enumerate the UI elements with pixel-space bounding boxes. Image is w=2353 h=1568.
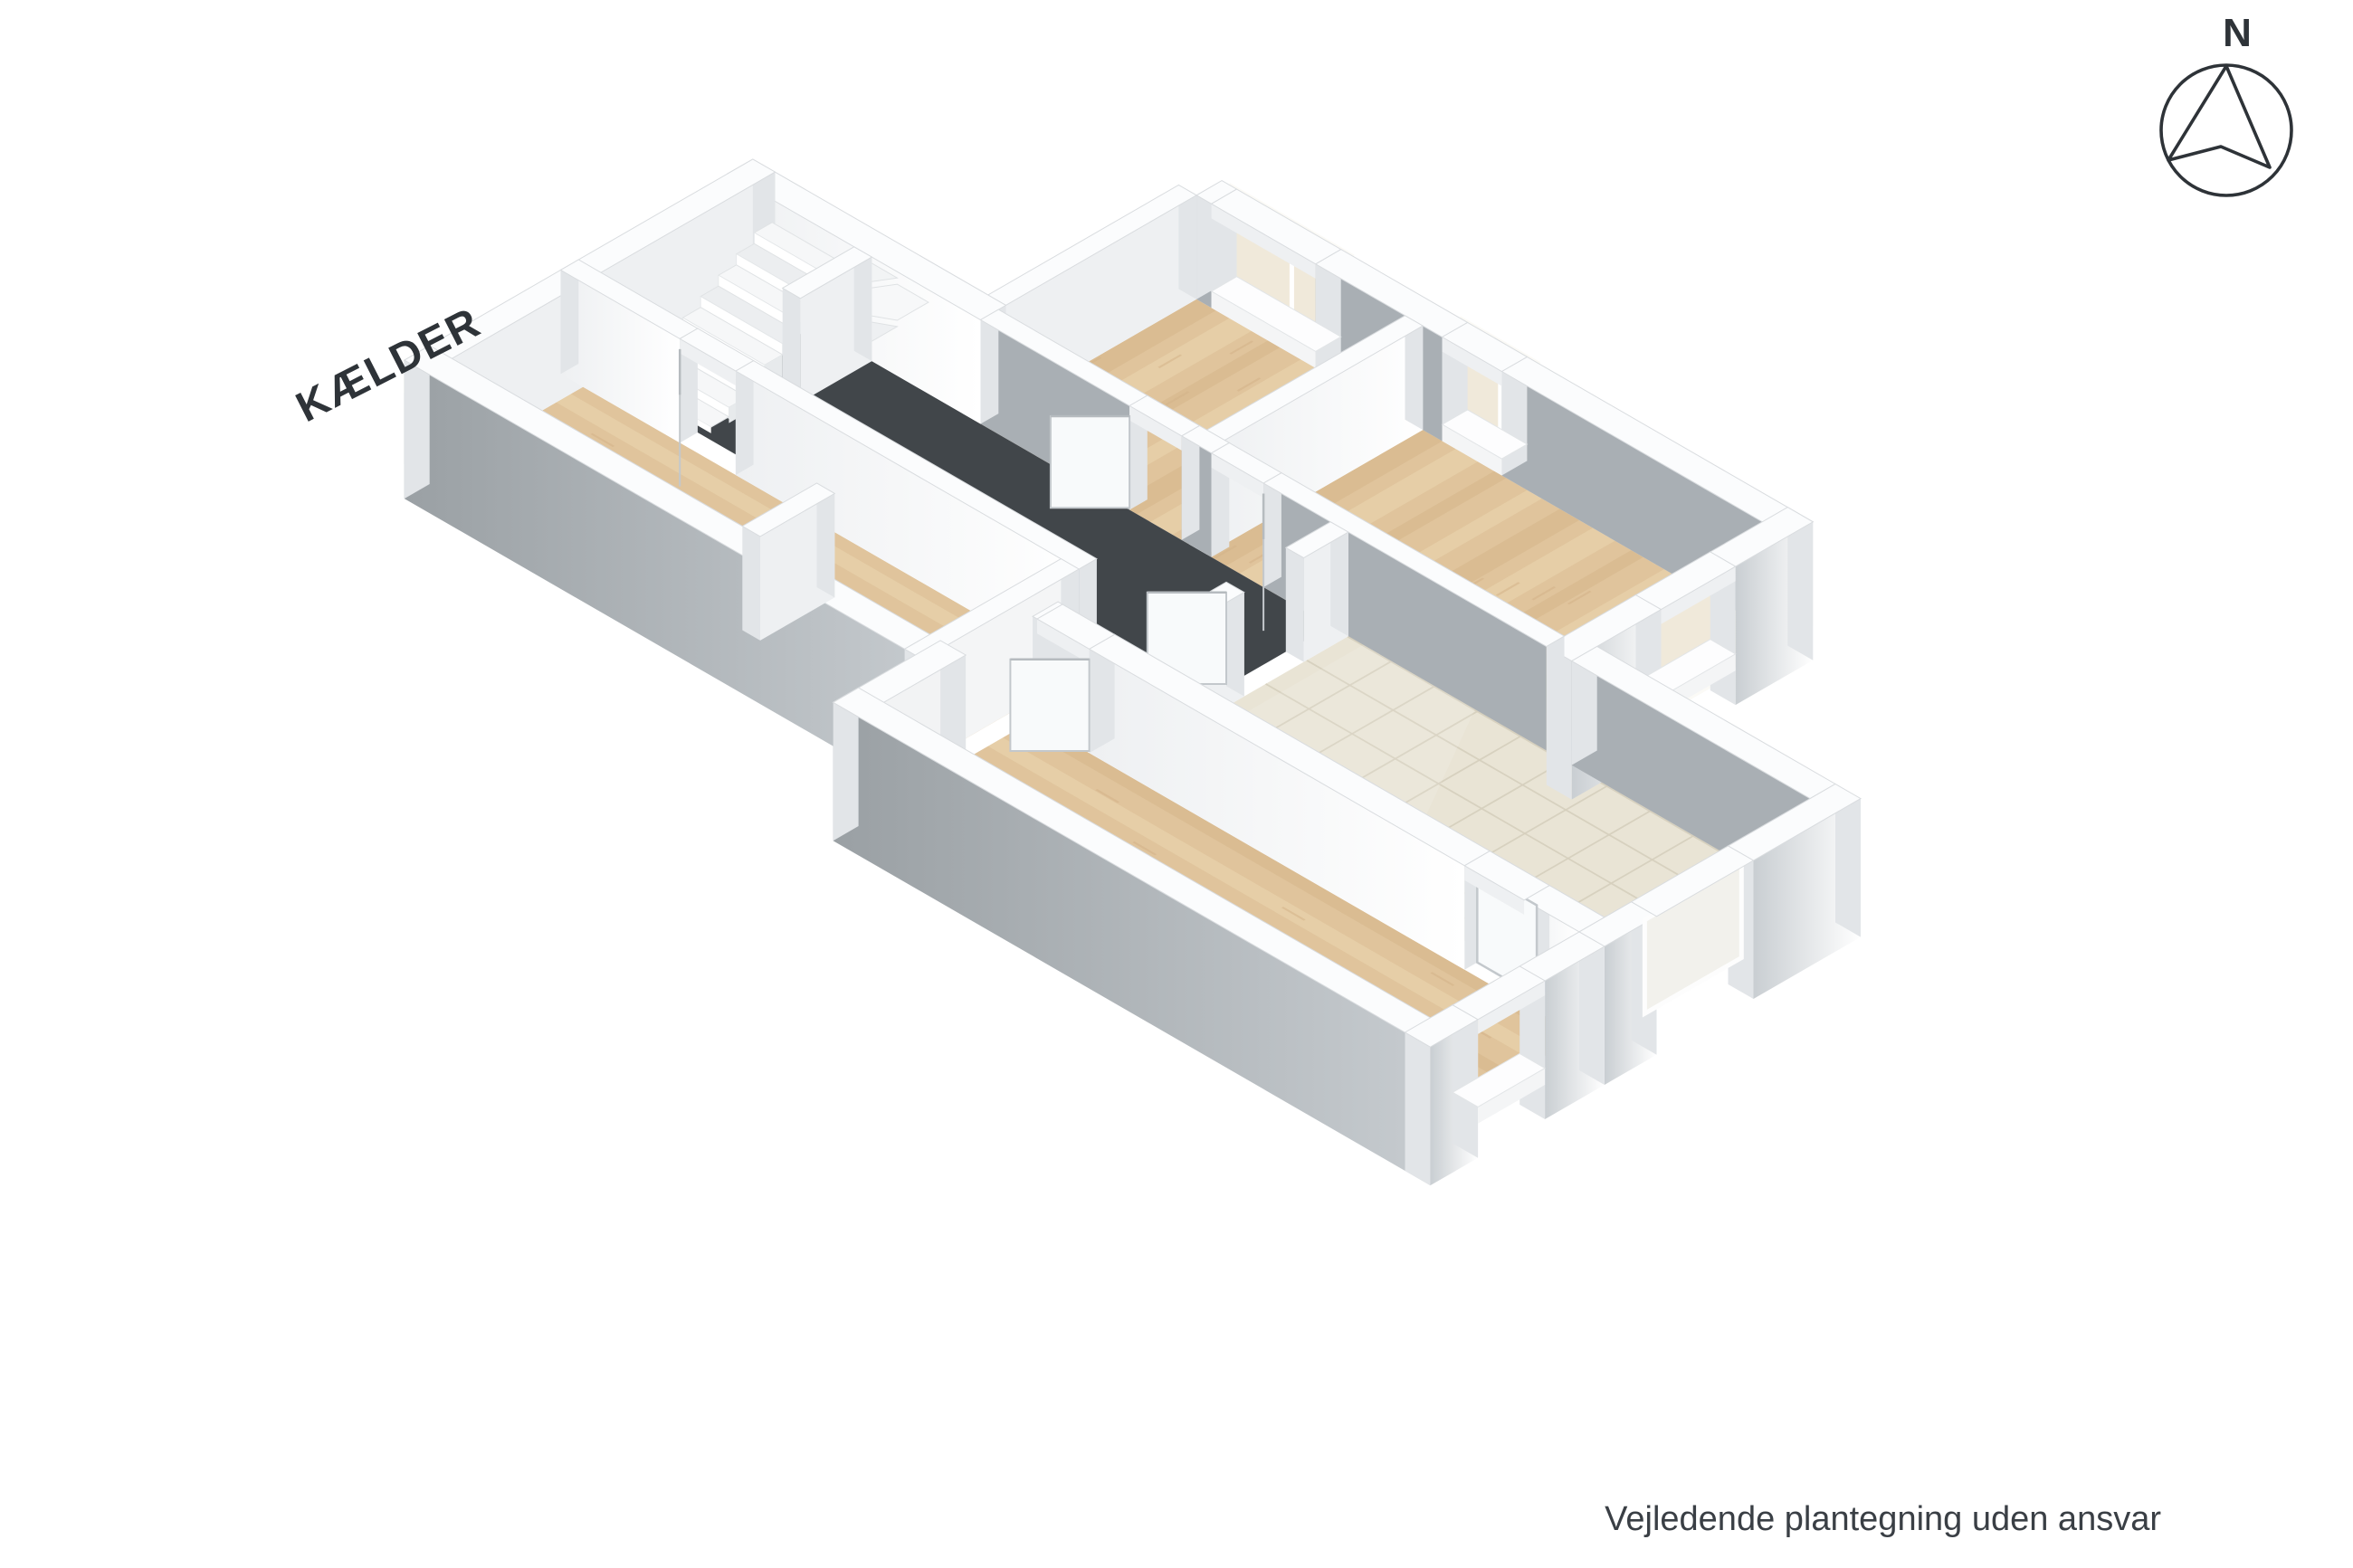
compass-north-label: N bbox=[2210, 11, 2264, 56]
floorplan-stage bbox=[0, 0, 2353, 1568]
disclaimer-text: Vejledende plantegning uden ansvar bbox=[1605, 1500, 2161, 1539]
floorplan-canvas bbox=[0, 0, 2353, 1568]
